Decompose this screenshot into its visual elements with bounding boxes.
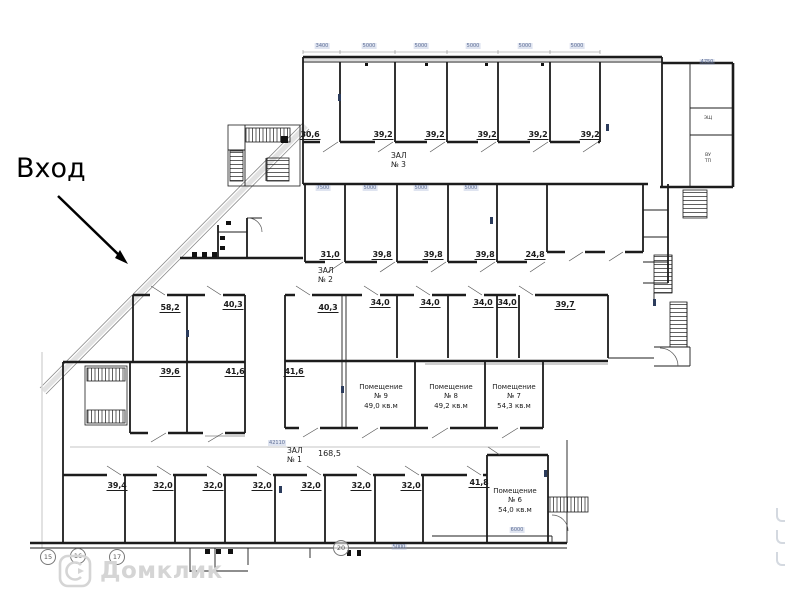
utility-room-label: ВУ ТП	[705, 153, 711, 164]
room-area-label: 30,6	[300, 130, 321, 140]
dimension-label: 5000	[392, 544, 407, 550]
right-edge-artifact	[776, 508, 785, 522]
room-area-label: 32,0	[252, 481, 273, 491]
room-area-label: 39,8	[372, 250, 393, 260]
room-area-label: 34,0	[497, 298, 518, 308]
room-area-label: 39,8	[475, 250, 496, 260]
door-leaves	[107, 142, 678, 531]
room-area-label: 58,2	[160, 303, 181, 313]
dimension-label: 5000	[363, 185, 378, 191]
premise-7-label: Помещение № 7 54,3 кв.м	[492, 383, 535, 411]
hall2-label: ЗАЛ № 2	[318, 266, 334, 284]
premise-8-label: Помещение № 8 49,2 кв.м	[429, 383, 472, 411]
dimension-label: 4750	[700, 59, 715, 65]
room-area-label: 40,3	[318, 303, 339, 313]
hall1-area: 168,5	[318, 449, 341, 458]
dimension-label: 5000	[414, 185, 429, 191]
room-area-label: 39,2	[528, 130, 549, 140]
hall1-label: ЗАЛ № 1	[287, 446, 303, 464]
premise-6-label: Помещение № 6 54,0 кв.м	[493, 487, 536, 515]
floor-plan: Вход 3400 5000 5000 5000 5000 5000 4750 …	[0, 0, 785, 599]
room-area-label: 39,6	[160, 367, 181, 377]
room-area-label: 39,2	[477, 130, 498, 140]
right-edge-artifact	[776, 552, 785, 566]
dimension-label: 5000	[570, 43, 585, 49]
axis-marker: 15	[40, 549, 56, 565]
domclick-logo-icon	[58, 554, 92, 588]
right-edge-artifact	[776, 530, 785, 544]
dimension-label: 6000	[510, 527, 525, 533]
room-area-label: 39,2	[373, 130, 394, 140]
room-area-label: 39,8	[423, 250, 444, 260]
axis-marker: 20	[333, 540, 349, 556]
premise-9-label: Помещение № 9 49,0 кв.м	[359, 383, 402, 411]
room-area-label: 32,0	[203, 481, 224, 491]
room-area-label: 39,4	[107, 481, 128, 491]
room-area-label: 32,0	[351, 481, 372, 491]
room-area-label: 32,0	[301, 481, 322, 491]
dimension-label: 5000	[362, 43, 377, 49]
dimension-label: 5000	[518, 43, 533, 49]
floor-plan-drawing	[0, 0, 785, 599]
room-area-label: 34,0	[420, 298, 441, 308]
dimension-label: 5000	[414, 43, 429, 49]
watermark-brand: Домклик	[100, 558, 223, 584]
room-area-label: 40,3	[223, 300, 244, 310]
entrance-label: Вход	[16, 153, 86, 184]
walls-partitions	[63, 57, 668, 543]
hall3-label: ЗАЛ № 3	[391, 151, 407, 169]
watermark: Домклик	[58, 554, 223, 588]
room-area-label: 41,8	[469, 478, 490, 488]
room-area-label: 34,0	[473, 298, 494, 308]
room-area-label: 31,0	[320, 250, 341, 260]
utility-room-label: ЭЩ	[704, 116, 712, 122]
dimension-label: 5000	[466, 43, 481, 49]
room-area-label: 34,0	[370, 298, 391, 308]
room-area-label: 32,0	[153, 481, 174, 491]
room-area-label: 24,8	[525, 250, 546, 260]
room-area-label: 41,6	[225, 367, 246, 377]
room-area-label: 41,6	[284, 367, 305, 377]
room-area-label: 32,0	[401, 481, 422, 491]
entrance-arrow	[58, 196, 128, 264]
dimension-label: 3400	[315, 43, 330, 49]
room-area-label: 39,2	[580, 130, 601, 140]
dimension-label: 5000	[464, 185, 479, 191]
dimension-label: 7500	[316, 185, 331, 191]
dimension-label: 42110	[268, 440, 286, 446]
room-area-label: 39,7	[555, 300, 576, 310]
door-jambs	[186, 94, 656, 493]
room-area-label: 39,2	[425, 130, 446, 140]
